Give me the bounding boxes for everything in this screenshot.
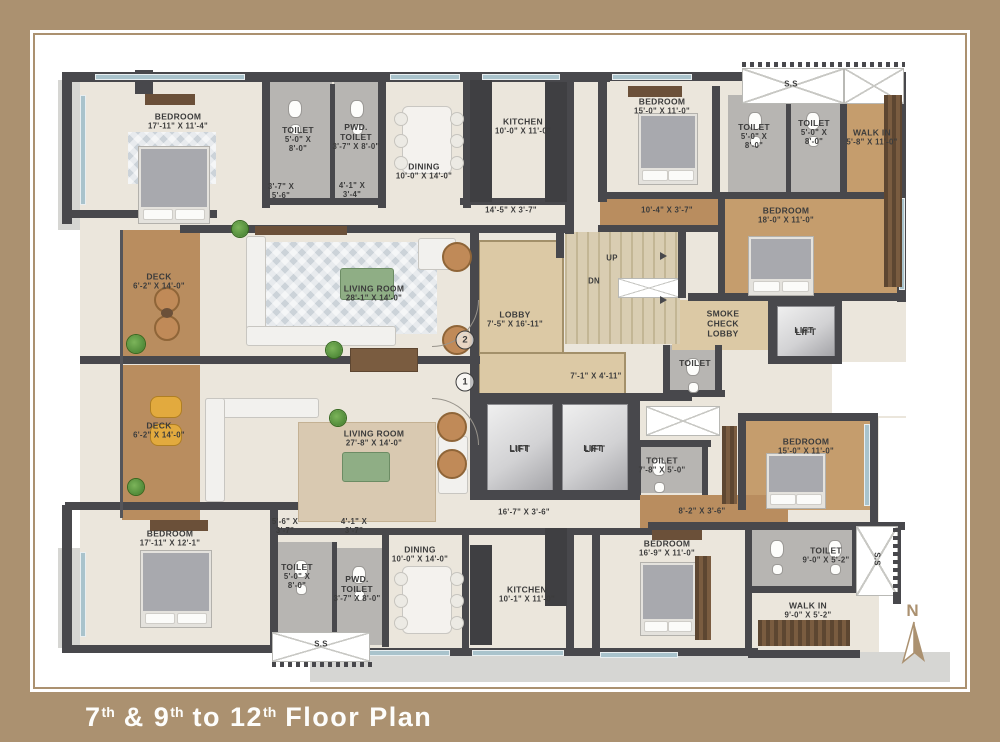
basin-fixture — [354, 590, 365, 601]
wardrobe — [884, 95, 902, 287]
kitchen-counter — [545, 528, 567, 606]
walkin-br-wardrobe — [758, 620, 850, 646]
compass-arrow-icon — [896, 620, 932, 664]
dresser — [150, 520, 208, 531]
wc-fixture — [806, 112, 820, 130]
wc-fixture — [828, 540, 842, 558]
wall — [598, 192, 905, 199]
corridor-top-right-floor — [600, 198, 718, 226]
window — [80, 95, 86, 205]
bed-r15-blanket — [769, 456, 823, 492]
living-2-coffee-table — [342, 452, 390, 482]
dining-chair — [450, 156, 464, 170]
dining-table-2 — [402, 566, 452, 634]
title-ordinal-suffix: th — [263, 704, 276, 720]
armchair-round — [437, 449, 467, 479]
dining-chair — [394, 112, 408, 126]
bed-bm-pillow — [668, 621, 692, 632]
dining-chair — [450, 112, 464, 126]
lobby-floor-patch — [480, 354, 558, 394]
wall — [566, 528, 574, 648]
wc-fixture — [748, 112, 762, 130]
dining-chair — [394, 134, 408, 148]
bed-r15 — [766, 453, 826, 509]
bed-bl-pillow — [145, 613, 175, 624]
bed-bm-blanket — [643, 565, 693, 619]
toilet-c-floor — [638, 443, 708, 493]
plant — [127, 335, 145, 353]
window — [482, 74, 560, 80]
wall — [738, 413, 746, 510]
footer-bar: 7th & 9th to 12th Floor Plan — [0, 692, 1000, 742]
dining-chair — [394, 156, 408, 170]
page-title: 7th & 9th to 12th Floor Plan — [85, 702, 432, 733]
wc-fixture — [288, 100, 302, 118]
bed-bl-pillow — [177, 613, 207, 624]
bed-r18-blanket — [751, 239, 811, 279]
stair-landing — [618, 278, 680, 298]
wc-fixture — [352, 566, 366, 584]
wall — [62, 505, 72, 653]
wall — [702, 440, 708, 495]
living-1-sofa-left — [246, 236, 266, 338]
title-ordinal-suffix: th — [102, 704, 115, 720]
basin-fixture — [772, 564, 783, 575]
basin-fixture — [830, 564, 841, 575]
bed-bl-blanket — [143, 553, 209, 611]
basin-fixture — [688, 382, 699, 393]
dotted-edge-top — [742, 62, 905, 67]
title-text: & 9 — [115, 702, 171, 732]
wall — [635, 440, 711, 447]
stair-arrow-dn-icon — [660, 296, 667, 304]
wardrobe — [695, 556, 711, 640]
window — [612, 74, 692, 80]
wc-fixture — [770, 540, 784, 558]
deck-railing — [120, 230, 123, 518]
wall — [80, 356, 480, 364]
wall — [598, 225, 720, 232]
wall — [382, 528, 389, 647]
bed-tl-blanket — [141, 149, 207, 207]
console-table — [350, 348, 418, 372]
bed-r18 — [748, 236, 814, 296]
dining-table-1 — [402, 106, 452, 174]
window — [80, 552, 86, 637]
bed-r18-pillow — [753, 281, 781, 292]
plant — [128, 479, 144, 495]
wall — [556, 228, 564, 258]
wall — [265, 198, 385, 205]
kitchen-counter — [545, 128, 567, 202]
dotted-edge-right — [893, 528, 898, 604]
bed-tl-pillow — [175, 209, 205, 220]
lift-2: LIFT — [562, 404, 628, 494]
deck-2-lounger — [150, 424, 182, 446]
kitchen-counter — [470, 545, 492, 645]
deck-1-chair — [154, 315, 180, 341]
bed-tm-blanket — [641, 116, 695, 168]
bed-tl-pillow — [143, 209, 173, 220]
dining-chair — [394, 616, 408, 630]
title-text: 7 — [85, 702, 102, 732]
bed-tm-pillow — [668, 170, 693, 181]
wall — [718, 192, 725, 298]
wall — [748, 586, 856, 593]
window — [95, 74, 245, 80]
window — [472, 650, 564, 656]
bed-r18-pillow — [782, 281, 810, 292]
stair-arrow-up-icon — [660, 252, 667, 260]
wc-fixture — [350, 100, 364, 118]
window — [390, 74, 460, 80]
living-2-sofa-left — [205, 398, 225, 502]
wall — [332, 542, 337, 645]
flower-bed — [646, 406, 720, 436]
dining-chair — [450, 594, 464, 608]
wall — [663, 345, 670, 395]
kitchen-counter — [545, 82, 567, 128]
lift-1: LIFT — [487, 404, 553, 494]
basin-fixture — [296, 584, 307, 595]
bed-tm-pillow — [642, 170, 667, 181]
wall — [470, 225, 479, 500]
dining-chair — [450, 616, 464, 630]
plant — [232, 221, 248, 237]
dotted-edge-bottom — [272, 662, 372, 667]
dining-chair — [394, 594, 408, 608]
bed-tl — [138, 146, 210, 224]
title-text: Floor Plan — [276, 702, 432, 732]
dining-chair — [450, 572, 464, 586]
bed-tm — [638, 113, 698, 185]
wall — [768, 356, 842, 364]
living-1-tv-console — [255, 226, 347, 235]
wall — [598, 72, 607, 202]
wc-fixture — [294, 560, 308, 578]
dining-chair — [450, 134, 464, 148]
wall — [715, 345, 722, 395]
wall — [786, 95, 791, 193]
wardrobe — [722, 426, 737, 504]
dresser — [652, 530, 702, 540]
wc-fixture — [686, 358, 700, 376]
basin-fixture — [750, 136, 761, 147]
title-text: to 12 — [184, 702, 264, 732]
dining-chair — [394, 572, 408, 586]
ss-slab-bottom — [272, 632, 370, 662]
ss-slab-top — [742, 68, 844, 104]
armchair-round — [442, 242, 472, 272]
living-1-sofa-bottom — [246, 326, 396, 346]
unit-1-marker: 1 — [456, 373, 475, 392]
toilet-br-floor — [752, 528, 854, 588]
lift-label: LIFT — [796, 327, 817, 337]
wall — [678, 230, 686, 298]
wall — [745, 524, 752, 654]
smoke-lobby-floor — [672, 300, 774, 350]
wall — [870, 413, 878, 530]
basin-fixture — [808, 136, 819, 147]
window — [600, 652, 678, 658]
bed-bl — [140, 550, 212, 628]
compass-north-label: N — [906, 601, 919, 621]
deck-1-table — [161, 308, 173, 318]
bed-r15-pillow — [770, 494, 795, 505]
title-ordinal-suffix: th — [170, 704, 183, 720]
wall — [462, 528, 469, 648]
wc-fixture — [652, 458, 666, 476]
bed-bm-pillow — [644, 621, 668, 632]
living-1-coffee-table — [340, 268, 394, 300]
window — [864, 424, 870, 506]
plant — [330, 410, 346, 426]
unit-2-marker: 2 — [456, 331, 475, 350]
wall — [478, 490, 640, 499]
wall — [635, 440, 641, 495]
wall — [712, 86, 720, 196]
wall — [478, 393, 692, 401]
plant — [326, 342, 342, 358]
wall — [745, 413, 878, 421]
ss-slab-right — [856, 526, 898, 596]
dresser — [145, 94, 195, 105]
bed-r15-pillow — [796, 494, 821, 505]
basin-fixture — [290, 124, 301, 135]
floor-plan-page: LIFTLIFTLIFTBEDROOM17'-11" X 11'-4"TOILE… — [0, 0, 1000, 742]
wall — [748, 650, 860, 658]
wall — [270, 502, 278, 647]
basin-fixture — [654, 482, 665, 493]
lift-label: LIFT — [585, 444, 606, 454]
floor-plan: LIFTLIFTLIFTBEDROOM17'-11" X 11'-4"TOILE… — [0, 0, 1000, 692]
dresser — [628, 86, 682, 97]
wall — [262, 72, 270, 208]
toilet-tl-floor — [270, 82, 332, 204]
wall — [592, 528, 600, 650]
lift-right: LIFT — [777, 306, 835, 358]
cutout — [832, 362, 906, 416]
lift-label: LIFT — [510, 444, 531, 454]
kitchen-counter — [470, 80, 492, 202]
wall — [330, 84, 335, 204]
wall — [378, 72, 386, 208]
wall — [62, 72, 72, 224]
deck-2-lounger — [150, 396, 182, 418]
basin-fixture — [352, 124, 363, 135]
bed-bm — [640, 562, 696, 636]
